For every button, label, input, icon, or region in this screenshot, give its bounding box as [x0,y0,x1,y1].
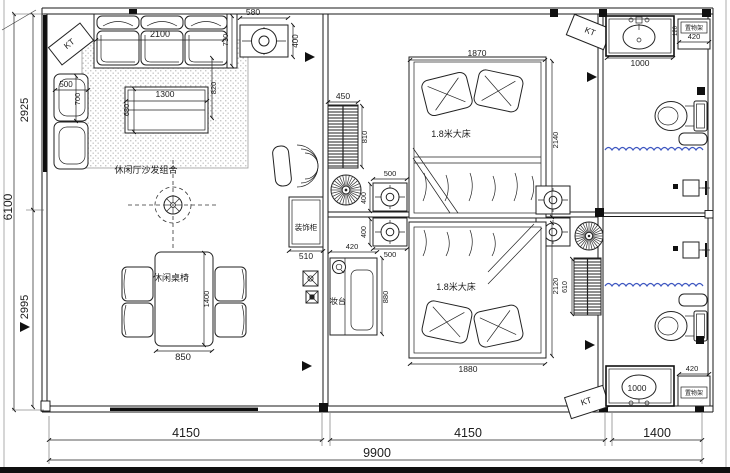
dim-label: 1400 [202,291,211,308]
dim-label: 1300 [156,89,175,99]
radiator-grille [574,258,601,315]
dim-label: 420 [346,242,359,251]
dining-chair [215,267,246,301]
dim-label: 400 [361,192,368,204]
decorative-cabinet [289,197,323,247]
room-label: 休闲厅沙发组合 [114,164,177,175]
room-label: 休闲桌椅 [153,272,189,283]
wall-socket [696,336,704,344]
column [595,208,604,217]
dim-label: 2140 [551,132,560,149]
dim-label: 610 [562,281,569,293]
radiator-grille [328,105,358,168]
direction-marker [20,322,30,332]
dim-label: 450 [336,91,350,101]
dim-label: 1000 [631,58,650,68]
dim-label: 2100 [150,29,170,39]
bathroom-1 [605,16,710,196]
column [550,9,558,17]
corner-column [41,401,50,411]
direction-marker [302,361,312,371]
bedroom-2 [330,218,609,419]
bed-1 [409,57,546,218]
direction-marker [305,52,315,62]
bathroom-2 [605,242,710,406]
window-left [43,15,47,172]
dim-label: 1.8米大床 [431,128,471,139]
wall-socket [697,87,705,95]
wall-switch-icon [306,291,318,303]
ac-cassette-icon [373,218,407,246]
floor-plan-page: 5804002100730820KT5007001300680休闲厅沙发组合休闲… [0,0,730,473]
bath-mat [679,294,707,306]
desk-chair [272,145,318,187]
dim-label: 4150 [454,426,482,440]
dim-label: 580 [246,7,260,17]
page-bottom-band [0,467,730,473]
dim-label: 420 [686,364,699,373]
dim-label: 820 [209,82,218,95]
armchair [54,122,88,169]
ac-cassette-icon [373,183,407,211]
dim-label: 400 [291,34,300,48]
hairdryer-icon [333,261,346,274]
toilet [655,101,707,131]
exhaust-fan-icon [575,222,603,250]
dim-label: 420 [688,32,701,41]
shower-curtain-wave [605,284,703,287]
dim-label: 120 [673,25,679,36]
dim-label: 9900 [363,446,391,460]
shower-head-icon [673,180,710,196]
dim-label: 1400 [643,426,671,440]
bed-2 [409,222,546,358]
sofa [94,14,237,68]
dim-label: 1870 [468,48,487,58]
dim-label: 2120 [551,278,560,295]
vanity-sink [606,16,674,56]
dim-label: 880 [381,291,390,304]
shower-head-icon [673,242,710,258]
room-label: 置物架 [685,24,703,32]
dining-chair [215,303,246,337]
living-room [48,14,323,346]
direction-marker [585,340,595,350]
dining-chair [122,267,153,301]
dim-label: 4150 [172,426,200,440]
ac-cassette-icon [536,186,570,214]
dim-label: 1880 [459,364,478,374]
dim-label: 2925 [19,98,31,122]
dim-label: 850 [175,352,191,363]
dim-label: 2995 [19,295,31,319]
dim-label: 1.8米大床 [436,281,476,292]
dining-chair [122,303,153,337]
window-bottom [110,408,258,411]
dim-label: 500 [384,169,397,178]
exhaust-fan-icon [331,175,361,205]
room-label: 妆台 [330,296,346,306]
ac-cassette-icon [240,25,288,57]
dim-label: 500 [384,250,397,259]
wall-switch-icon [303,271,318,286]
column [319,403,328,412]
wall-junction [705,211,713,219]
room-label: 置物架 [685,389,703,397]
dim-label: 700 [73,93,82,106]
dim-label: 680 [122,104,131,117]
bedroom-1 [328,14,612,218]
dim-label: 6100 [1,193,15,220]
bath-mat [679,133,707,145]
dim-label: 500 [59,80,73,89]
dim-label: 1000 [628,383,647,393]
room-label: 装饰柜 [295,222,318,232]
dim-label: 400 [361,226,368,238]
floor-plan-canvas: 5804002100730820KT5007001300680休闲厅沙发组合休闲… [0,0,730,473]
shower-curtain-wave [605,148,703,151]
dim-label: 510 [299,251,313,261]
direction-marker [587,72,597,82]
dim-label: 730 [221,34,230,47]
dim-label: 810 [360,131,369,144]
column [702,9,711,17]
